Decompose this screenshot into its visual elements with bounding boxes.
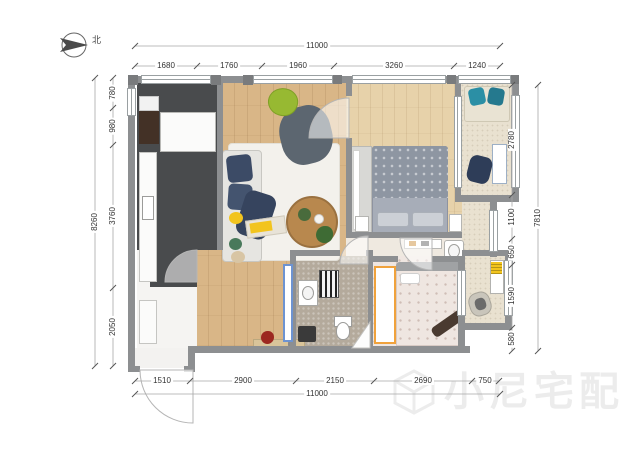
dim-bottom-seg: 750 [476, 377, 493, 385]
entry-floor [133, 348, 188, 368]
dim-top-seg: 1240 [466, 62, 488, 70]
dim-right-seg: 580 [508, 330, 516, 347]
teal-cushion [467, 87, 486, 107]
wall [290, 250, 340, 256]
nightstand-right [449, 214, 462, 232]
wall [368, 250, 373, 352]
wall [432, 256, 462, 262]
shelf-item [421, 241, 429, 246]
bed-pillow [412, 212, 444, 227]
dim-top-overall: 11000 [304, 42, 330, 50]
north-label: 北 [92, 35, 101, 45]
dim-bottom-seg: 2900 [232, 377, 254, 385]
column [333, 75, 342, 84]
wall [217, 83, 223, 250]
toilet-bowl [336, 322, 350, 340]
dim-right-seg: 1590 [508, 285, 516, 307]
window [458, 75, 511, 84]
window [141, 75, 211, 84]
table-plant [298, 208, 311, 221]
blue-sliding-door [283, 264, 293, 342]
books-stack [491, 262, 502, 274]
table-tray [314, 214, 324, 224]
dim-left-seg: 2050 [109, 316, 117, 338]
wall [455, 195, 519, 202]
beige-pillow [231, 251, 245, 263]
window [489, 210, 498, 252]
nightstand-left [355, 216, 369, 232]
wall [184, 366, 194, 372]
wall [455, 83, 461, 96]
wall [346, 83, 352, 96]
window [127, 88, 136, 116]
bed-pillow [377, 212, 409, 227]
dim-right-seg: 2780 [508, 129, 516, 151]
teal-cushion [487, 87, 506, 107]
towel-radiator [319, 270, 339, 298]
bath-mat [298, 326, 316, 342]
dim-left-overall: 8260 [91, 211, 99, 233]
north-arrow-icon: 北 [52, 26, 110, 64]
orange-framed-wardrobe [374, 266, 396, 344]
watermark-text: 小尼宅配 [444, 372, 624, 412]
window [457, 270, 466, 316]
dim-bottom-overall: 11000 [304, 390, 330, 398]
window [352, 75, 446, 84]
wall [346, 138, 352, 238]
appliance [139, 96, 159, 111]
dim-right-seg: 650 [508, 243, 516, 260]
shelf-item [409, 241, 416, 246]
dim-top-seg: 1680 [155, 62, 177, 70]
window [253, 75, 333, 84]
dim-bottom-seg: 2150 [324, 377, 346, 385]
column [211, 75, 221, 85]
dim-top-seg: 3260 [383, 62, 405, 70]
wall [188, 346, 470, 353]
kitchen-island [160, 112, 216, 152]
green-pillow [229, 238, 242, 250]
dim-right-seg: 1100 [508, 206, 516, 227]
bed-duvet-pattern [372, 146, 448, 198]
utility-nook-floor [462, 202, 490, 257]
potted-plant [316, 226, 333, 243]
wall [462, 323, 512, 330]
dim-right-overall: 7810 [534, 207, 542, 229]
column [128, 75, 138, 85]
second-bed-headboard [396, 262, 462, 271]
kitchen-floor-ext [150, 250, 197, 287]
column [510, 75, 519, 84]
window [454, 96, 462, 188]
kitchen-sink [142, 196, 154, 220]
wall [346, 232, 462, 238]
second-bed-pillow [400, 273, 420, 284]
yellow-pillow [229, 212, 243, 224]
balcony-shelf [492, 144, 507, 184]
sofa-cushion [226, 154, 254, 183]
dim-left-seg: 3760 [109, 205, 117, 227]
wall [128, 366, 140, 372]
column [243, 75, 253, 85]
dim-top-seg: 1960 [287, 62, 309, 70]
wall [368, 256, 398, 262]
floor-plan: 小尼宅配 北 [0, 0, 640, 459]
bathroom-basin [302, 286, 314, 300]
utility-cabinet [139, 300, 157, 344]
dim-bottom-seg: 2690 [412, 377, 434, 385]
wall [455, 188, 461, 197]
dim-bottom-seg: 1510 [151, 377, 173, 385]
wall [128, 76, 135, 372]
dim-top-seg: 1760 [218, 62, 240, 70]
dim-left-seg: 980 [109, 117, 117, 134]
dim-left-seg: 780 [109, 84, 117, 101]
column [447, 75, 456, 84]
